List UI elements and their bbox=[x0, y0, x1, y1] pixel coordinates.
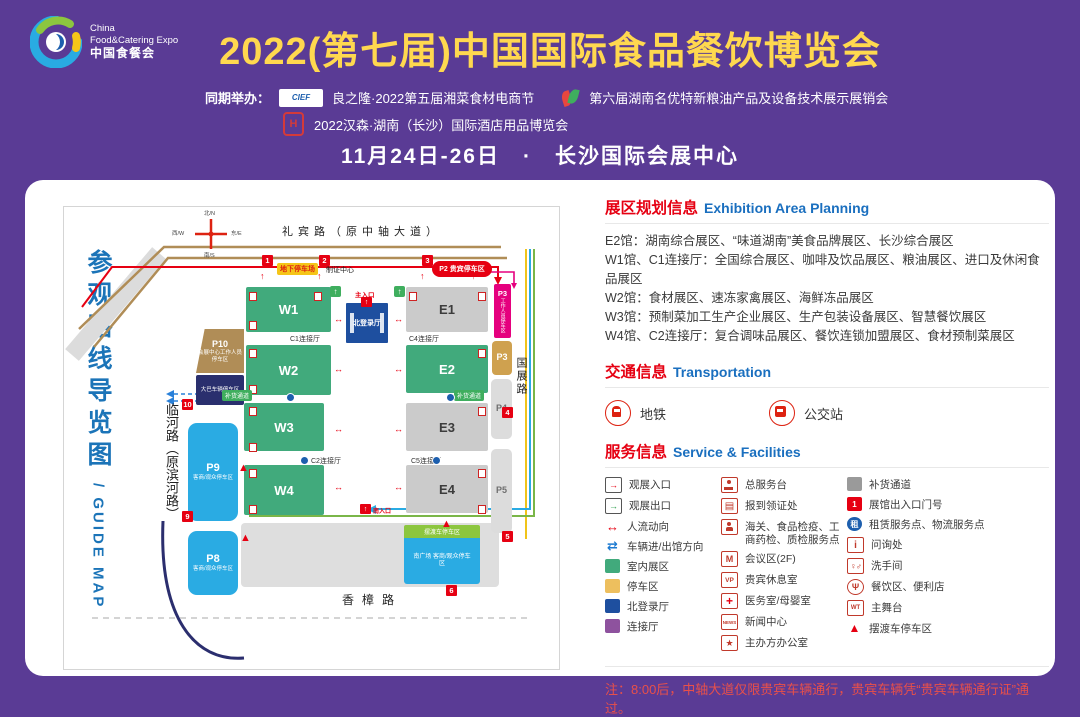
gate-9: 9 bbox=[182, 511, 193, 522]
facility-marker-icon bbox=[478, 505, 486, 514]
parking-p3: P3 bbox=[492, 341, 512, 375]
legend-label: 贵宾休息室 bbox=[745, 572, 798, 587]
legend-item: ↔人流动向 bbox=[605, 519, 721, 534]
parking-p8-label: 客商/观众停车区 bbox=[193, 566, 233, 573]
exhibition-lines: E2馆：湖南综合展区、“味道湖南”美食品牌展区、长沙综合展区 W1馆、C1连接厅… bbox=[605, 232, 1049, 346]
vip-access-note: 注：8:00后，中轴大道仅限贵宾车辆通行，贵宾车辆凭“贵宾车辆通行证”通过。 bbox=[605, 666, 1049, 717]
parking-p2-vip: P2 贵宾停车区 bbox=[432, 261, 492, 277]
bus-icon bbox=[769, 400, 795, 426]
parking-p10: P10 会展中心工作人员停车区 bbox=[196, 329, 244, 373]
underground-parking-label: 地下停车场 bbox=[277, 263, 318, 275]
flow-arrow-icon: ↔ bbox=[334, 365, 343, 374]
facility-marker-icon bbox=[249, 292, 257, 301]
road-bottom-label: 香樟路 bbox=[342, 591, 402, 608]
gate-5: 5 bbox=[502, 531, 513, 542]
parking-p3-staff-id: P3 bbox=[498, 289, 507, 298]
legend-label: 展馆出入口门号 bbox=[869, 497, 943, 512]
facility-marker-icon bbox=[314, 292, 322, 301]
registration-icon: ▤ bbox=[721, 498, 738, 514]
vip-lounge-icon: VP bbox=[721, 572, 738, 588]
facility-marker-icon bbox=[249, 407, 257, 416]
meeting-icon: M bbox=[721, 551, 738, 567]
facility-marker-icon bbox=[249, 443, 257, 452]
legend-label: 会议区(2F) bbox=[745, 551, 796, 566]
flow-arrow-icon: ↔ bbox=[394, 315, 403, 324]
legend-label: 人流动向 bbox=[627, 519, 669, 534]
exit-out-icon: → bbox=[605, 498, 622, 514]
legend-label: 连接厅 bbox=[627, 619, 659, 634]
exhibition-title-cn: 展区规划信息 bbox=[605, 200, 698, 217]
co-event2: 第六届湖南名优特新粮油产品及设备技术展示展销会 bbox=[589, 88, 888, 107]
guide-card: 参观路线导览图 / GUIDE MAP bbox=[25, 180, 1055, 676]
restock-lane-west-label: 补货通道 bbox=[222, 390, 252, 401]
connector-swatch bbox=[605, 619, 620, 633]
co-events-row2: H 2022汉森·湖南（长沙）国际酒店用品博览会 bbox=[283, 112, 568, 136]
legend-item: Ψ餐饮区、便利店 bbox=[847, 579, 1047, 595]
compass-north: 北/N bbox=[204, 209, 215, 217]
date-venue: 11月24日-26日 · 长沙国际会展中心 bbox=[0, 140, 1080, 170]
facility-marker-icon bbox=[478, 349, 486, 358]
legend-column-3: 补货通道 1展馆出入口门号 租租赁服务点、物流服务点 i问询处 ♀♂洗手间 Ψ餐… bbox=[847, 477, 1047, 656]
connector-c1-label: C1连接厅 bbox=[290, 334, 320, 344]
news-center-icon: NEWS bbox=[721, 614, 738, 630]
legend-item: 停车区 bbox=[605, 579, 721, 594]
flow-arrow-icon: ↔ bbox=[394, 365, 403, 374]
hall-e2: E2 bbox=[406, 345, 488, 393]
legend-item: NEWS新闻中心 bbox=[721, 614, 847, 630]
legend-item: VP贵宾休息室 bbox=[721, 572, 847, 588]
transport-section-title: 交通信息Transportation bbox=[605, 360, 1049, 388]
dining-icon: Ψ bbox=[847, 579, 864, 595]
parking-p5-id: P5 bbox=[496, 485, 507, 496]
bus-label: 公交站 bbox=[804, 404, 843, 423]
co-event3: 2022汉森·湖南（长沙）国际酒店用品博览会 bbox=[314, 115, 568, 134]
legend-label: 北登录厅 bbox=[627, 599, 669, 614]
south-entrance-label: 南入口 bbox=[373, 506, 391, 515]
legend-label: 新闻中心 bbox=[745, 614, 787, 629]
hall-e3: E3 bbox=[406, 403, 488, 451]
legend-label: 主办方办公室 bbox=[745, 635, 808, 650]
legend-item: i问询处 bbox=[847, 537, 1047, 553]
flow-arrow-icon: ↑ bbox=[420, 272, 425, 281]
north-exit-east-icon: ↑ bbox=[394, 286, 405, 297]
gate-4: 4 bbox=[502, 407, 513, 418]
parking-p9: P9 客商/观众停车区 bbox=[188, 423, 238, 521]
hansen-logo: H bbox=[283, 112, 304, 136]
legend-label: 租赁服务点、物流服务点 bbox=[869, 517, 985, 532]
transport-bus: 公交站 bbox=[769, 400, 919, 426]
restock-swatch bbox=[847, 477, 862, 491]
co-event1: 良之隆·2022第五届湘菜食材电商节 bbox=[332, 88, 534, 107]
legend-item: 补货通道 bbox=[847, 477, 1047, 492]
legend-item: WT主舞台 bbox=[847, 600, 1047, 616]
facility-marker-icon bbox=[409, 292, 417, 301]
connector-c4-label: C4连接厅 bbox=[409, 334, 439, 344]
cief-logo: CIEF bbox=[279, 89, 323, 107]
exhibition-line: W1馆、C1连接厅：全国综合展区、咖啡及饮品展区、粮油展区、进口及休闲食品展区 bbox=[605, 251, 1049, 289]
logo-line3: 中国食餐会 bbox=[90, 46, 178, 61]
parking-p8-id: P8 bbox=[206, 553, 219, 567]
shuttle-stop-icon: ▲ bbox=[240, 533, 251, 544]
legend-label: 报到领证处 bbox=[745, 498, 798, 513]
legend-item: ⇄车辆进/出馆方向 bbox=[605, 539, 721, 554]
legend-item: 总服务台 bbox=[721, 477, 847, 493]
gate-number-icon: 1 bbox=[847, 497, 862, 511]
legend-item: 海关、食品检疫、工商药检、质检服务点 bbox=[721, 519, 847, 546]
grain-expo-logo-icon bbox=[560, 89, 580, 107]
legend-item: M会议区(2F) bbox=[721, 551, 847, 567]
services-legend: →观展入口 →观展出口 ↔人流动向 ⇄车辆进/出馆方向 室内展区 停车区 北登录… bbox=[605, 477, 1049, 656]
flow-arrow-icon: ↑ bbox=[260, 272, 265, 281]
organizer-office-icon: ★ bbox=[721, 635, 738, 651]
legend-label: 室内展区 bbox=[627, 559, 669, 574]
legend-label: 餐饮区、便利店 bbox=[871, 579, 945, 594]
gate-2: 2 bbox=[319, 255, 330, 266]
legend-label: 补货通道 bbox=[869, 477, 911, 492]
restroom-icon: ♀♂ bbox=[847, 558, 864, 574]
shuttle-parking-icon: ▲ bbox=[847, 621, 862, 635]
hall-w2: W2 bbox=[246, 345, 331, 395]
north-registration-hall: 北登录厅 bbox=[346, 303, 388, 343]
legend-item: 1展馆出入口门号 bbox=[847, 497, 1047, 512]
legend-item: →观展出口 bbox=[605, 498, 721, 514]
metro-label: 地铁 bbox=[640, 404, 666, 423]
logo-line1: China bbox=[90, 23, 178, 35]
guide-map: 参观路线导览图 / GUIDE MAP bbox=[63, 206, 560, 670]
legend-label: 医务室/母婴室 bbox=[745, 593, 811, 608]
legend-label: 车辆进/出馆方向 bbox=[627, 539, 703, 554]
exhibition-section-title: 展区规划信息Exhibition Area Planning bbox=[605, 196, 1049, 224]
main-entrance-icon: ↑ bbox=[361, 297, 372, 307]
flow-arrow-icon: ↔ bbox=[394, 425, 403, 434]
legend-label: 问询处 bbox=[871, 537, 903, 552]
parking-p9-id: P9 bbox=[206, 462, 219, 476]
connector-c2-label: C2连接厅 bbox=[311, 456, 341, 466]
guide-map-title-en: / GUIDE MAP bbox=[90, 483, 107, 609]
service-point-icon bbox=[286, 393, 295, 402]
co-events-row1: 同期举办： CIEF 良之隆·2022第五届湘菜食材电商节 第六届湖南名优特新粮… bbox=[205, 88, 888, 107]
vehicle-direction-icon: ⇄ bbox=[605, 539, 620, 553]
legend-column-1: →观展入口 →观展出口 ↔人流动向 ⇄车辆进/出馆方向 室内展区 停车区 北登录… bbox=[605, 477, 721, 656]
legend-label: 观展入口 bbox=[629, 477, 671, 492]
main-stage-icon: WT bbox=[847, 600, 864, 616]
north-exit-west-icon: ↑ bbox=[330, 286, 341, 297]
hall-e1: E1 bbox=[406, 287, 488, 332]
facility-marker-icon bbox=[478, 407, 486, 416]
expo-logo: China Food&Catering Expo 中国食餐会 bbox=[30, 16, 178, 68]
exhibition-line: W4馆、C2连接厅：复合调味品展区、餐饮连锁加盟展区、食材预制菜展区 bbox=[605, 327, 1049, 346]
gate-1: 1 bbox=[262, 255, 273, 266]
parking-p3-staff: P3 工作人员停车区 bbox=[494, 284, 511, 338]
facility-marker-icon bbox=[249, 321, 257, 330]
legend-item: 连接厅 bbox=[605, 619, 721, 634]
indoor-hall-swatch bbox=[605, 559, 620, 573]
gate-6: 6 bbox=[446, 585, 457, 596]
facility-marker-icon bbox=[249, 349, 257, 358]
legend-item: ▤报到领证处 bbox=[721, 498, 847, 514]
hall-e4: E4 bbox=[406, 465, 488, 513]
facility-marker-icon bbox=[249, 505, 257, 514]
legend-item: →观展入口 bbox=[605, 477, 721, 493]
gate-10: 10 bbox=[182, 399, 193, 410]
guide-map-title-cn: 参观路线导览图 bbox=[80, 249, 116, 473]
legend-item: ★主办方办公室 bbox=[721, 635, 847, 651]
expo-logo-mark-icon bbox=[30, 16, 82, 68]
facility-marker-icon bbox=[249, 469, 257, 478]
gate-3: 3 bbox=[422, 255, 433, 266]
logo-line2: Food&Catering Expo bbox=[90, 35, 178, 47]
flow-arrow-icon: ↔ bbox=[394, 483, 403, 492]
metro-icon bbox=[605, 400, 631, 426]
parking-p3-staff-label: 工作人员停车区 bbox=[499, 298, 505, 333]
road-top-label: 礼宾路（原中轴大道） bbox=[282, 223, 442, 239]
legend-label: 总服务台 bbox=[745, 477, 787, 492]
flow-arrow-icon: ↑ bbox=[317, 272, 322, 281]
legend-item: +医务室/母婴室 bbox=[721, 593, 847, 609]
expo-guide-poster: { "theme":{"purple":"#5a3b95","title_yel… bbox=[0, 0, 1080, 694]
shuttle-stop-icon: ▲ bbox=[238, 463, 249, 474]
expo-title: 2022(第七届)中国国际食品餐饮博览会 bbox=[185, 20, 915, 75]
services-title-cn: 服务信息 bbox=[605, 444, 667, 461]
legend-item: 租租赁服务点、物流服务点 bbox=[847, 517, 1047, 532]
parking-p10-label: 会展中心工作人员停车区 bbox=[196, 350, 244, 364]
services-section-title: 服务信息Service & Facilities bbox=[605, 440, 1049, 468]
legend-label: 观展出口 bbox=[629, 498, 671, 513]
people-flow-icon: ↔ bbox=[605, 519, 620, 533]
exhibition-title-en: Exhibition Area Planning bbox=[704, 200, 869, 216]
compass-east: 东/E bbox=[231, 229, 242, 237]
south-plaza-parking-label: 南广场 客商/观众停车区 bbox=[412, 554, 472, 569]
service-point-icon bbox=[300, 456, 309, 465]
legend-item: 北登录厅 bbox=[605, 599, 721, 614]
guide-map-title: 参观路线导览图 / GUIDE MAP bbox=[80, 249, 116, 669]
info-icon: i bbox=[847, 537, 864, 553]
parking-p10-id: P10 bbox=[212, 339, 228, 350]
legend-item: ♀♂洗手间 bbox=[847, 558, 1047, 574]
service-point-icon bbox=[446, 393, 455, 402]
flow-arrow-icon: ↔ bbox=[334, 315, 343, 324]
flow-arrow-icon: ↔ bbox=[334, 425, 343, 434]
parking-swatch bbox=[605, 579, 620, 593]
transport-title-en: Transportation bbox=[673, 364, 771, 380]
legend-label: 停车区 bbox=[627, 579, 659, 594]
road-left-label: 临河路（原滨河路） bbox=[162, 403, 181, 520]
legend-label: 洗手间 bbox=[871, 558, 903, 573]
parking-p3-id: P3 bbox=[496, 352, 507, 363]
customs-icon bbox=[721, 519, 738, 535]
medical-icon: + bbox=[721, 593, 738, 609]
service-point-icon bbox=[432, 456, 441, 465]
facility-marker-icon bbox=[478, 292, 486, 301]
legend-item: 室内展区 bbox=[605, 559, 721, 574]
restock-lane-east-label: 补货通道 bbox=[454, 390, 484, 401]
parking-p9-label: 客商/观众停车区 bbox=[193, 475, 233, 482]
exhibition-line: E2馆：湖南综合展区、“味道湖南”美食品牌展区、长沙综合展区 bbox=[605, 232, 1049, 251]
co-events-label: 同期举办： bbox=[205, 88, 270, 107]
road-right-label: 国展路 bbox=[513, 357, 529, 396]
exhibition-line: W2馆：食材展区、速冻家禽展区、海鲜冻品展区 bbox=[605, 289, 1049, 308]
legend-label: 摆渡车停车区 bbox=[869, 621, 932, 636]
compass-west: 西/W bbox=[172, 229, 184, 237]
flow-arrow-icon: ↑ bbox=[471, 272, 476, 281]
rental-logistics-icon: 租 bbox=[847, 517, 862, 531]
transport-metro: 地铁 bbox=[605, 400, 755, 426]
legend-item: ▲摆渡车停车区 bbox=[847, 621, 1047, 636]
parking-p8: P8 客商/观众停车区 bbox=[188, 531, 238, 595]
parking-p5: P5 bbox=[491, 449, 512, 533]
flow-arrow-icon: ↔ bbox=[334, 483, 343, 492]
cert-center-label: 制证中心 bbox=[326, 265, 354, 275]
legend-column-2: 总服务台 ▤报到领证处 海关、食品检疫、工商药检、质检服务点 M会议区(2F) … bbox=[721, 477, 847, 656]
exhibition-line: W3馆：预制菜加工生产企业展区、生产包装设备展区、智慧餐饮展区 bbox=[605, 308, 1049, 327]
facility-marker-icon bbox=[478, 469, 486, 478]
south-plaza-parking: 南广场 客商/观众停车区 bbox=[404, 538, 480, 584]
shuttle-stop-icon: ▲ bbox=[441, 519, 452, 530]
services-title-en: Service & Facilities bbox=[673, 444, 801, 460]
south-entrance-icon: ↑ bbox=[360, 504, 371, 514]
service-desk-icon bbox=[721, 477, 738, 493]
compass-south: 南/S bbox=[204, 251, 215, 259]
entrance-in-icon: → bbox=[605, 477, 622, 493]
legend-label: 海关、食品检疫、工商药检、质检服务点 bbox=[745, 519, 845, 546]
transport-title-cn: 交通信息 bbox=[605, 364, 667, 381]
transport-items: 地铁 公交站 bbox=[605, 400, 1049, 426]
info-panel: 展区规划信息Exhibition Area Planning E2馆：湖南综合展… bbox=[605, 196, 1049, 717]
legend-label: 主舞台 bbox=[871, 600, 903, 615]
north-hall-swatch bbox=[605, 599, 620, 613]
